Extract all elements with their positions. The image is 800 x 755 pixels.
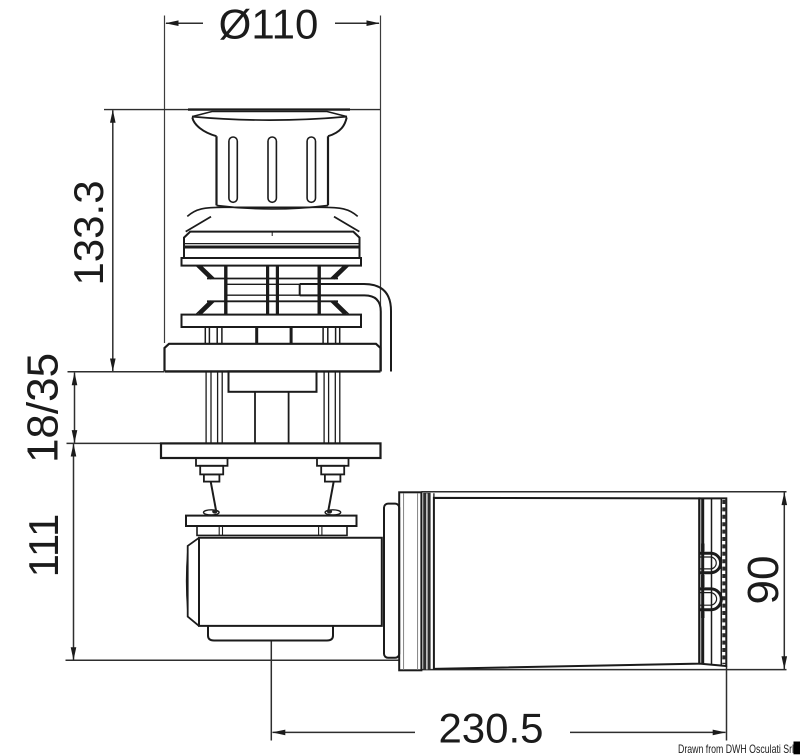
svg-text:111: 111	[20, 514, 67, 578]
svg-text:90: 90	[739, 556, 788, 605]
svg-text:18/35: 18/35	[19, 353, 68, 463]
svg-text:Ø110: Ø110	[219, 0, 319, 47]
svg-text:133.3: 133.3	[65, 180, 112, 285]
svg-text:Drawn from DWH Osculati Srl: Drawn from DWH Osculati Srl	[678, 742, 794, 755]
svg-text:230.5: 230.5	[438, 704, 543, 751]
